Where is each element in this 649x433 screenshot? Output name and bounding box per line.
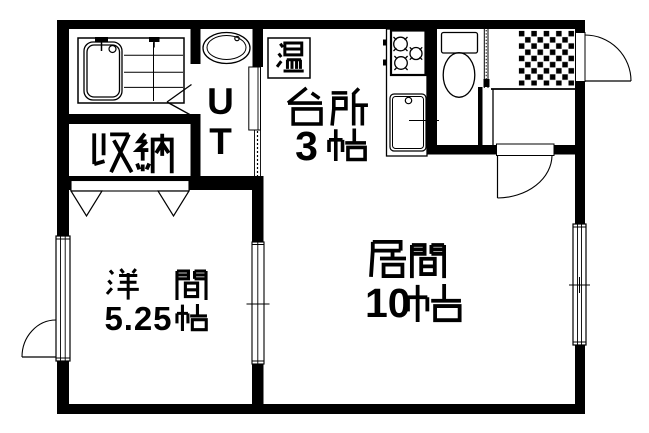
svg-text:3: 3 [295, 123, 318, 169]
svg-text:10: 10 [365, 280, 411, 326]
svg-text:T: T [209, 121, 232, 162]
svg-text:U: U [207, 81, 234, 122]
svg-text:5.25: 5.25 [105, 300, 173, 337]
